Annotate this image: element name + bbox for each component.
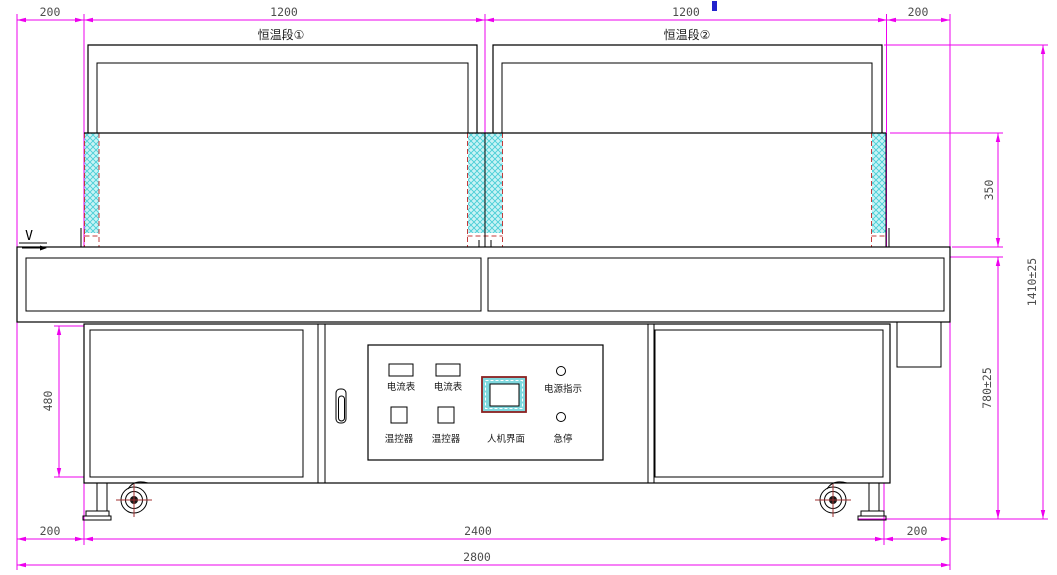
ammeter-2-label: 电流表 — [434, 381, 463, 393]
dim-bottom-2800: 2800 — [463, 550, 491, 564]
dim-overall-height-1410: 1410±25 — [1025, 258, 1039, 306]
section-1-label: 恒温段① — [258, 27, 305, 42]
conveyor-deck — [17, 247, 950, 322]
estop-label: 急停 — [553, 433, 573, 445]
hmi-label: 人机界面 — [487, 433, 525, 445]
insulation-wall-right — [872, 133, 886, 233]
dim-table-height-780: 780±25 — [980, 367, 994, 409]
hmi-screen — [482, 377, 526, 412]
dim-bottom-right-200: 200 — [907, 524, 928, 538]
dim-hood-height-350: 350 — [982, 180, 996, 201]
temp-controller-2-label: 温控器 — [432, 433, 461, 445]
temp-controller-1-label: 温控器 — [385, 433, 414, 445]
dim-top-1200-b: 1200 — [672, 5, 700, 19]
dim-top-left-200: 200 — [40, 5, 61, 19]
dim-cabinet-height-480: 480 — [41, 391, 55, 412]
dim-bottom-2400: 2400 — [464, 524, 492, 538]
text-cursor-mark — [712, 1, 717, 11]
dim-top-1200-a: 1200 — [270, 5, 298, 19]
section-2-label: 恒温段② — [664, 27, 711, 42]
insulation-wall-left — [85, 133, 100, 233]
dim-bottom-left-200: 200 — [40, 524, 61, 538]
power-indicator-label: 电源指示 — [544, 383, 582, 395]
ammeter-1-label: 电流表 — [387, 381, 416, 393]
dim-top-right-200: 200 — [908, 5, 929, 19]
direction-label: V — [25, 229, 33, 244]
cad-drawing-canvas: V 电流表 电流表 温控器 温控器 人机界面 电源 — [0, 0, 1057, 575]
